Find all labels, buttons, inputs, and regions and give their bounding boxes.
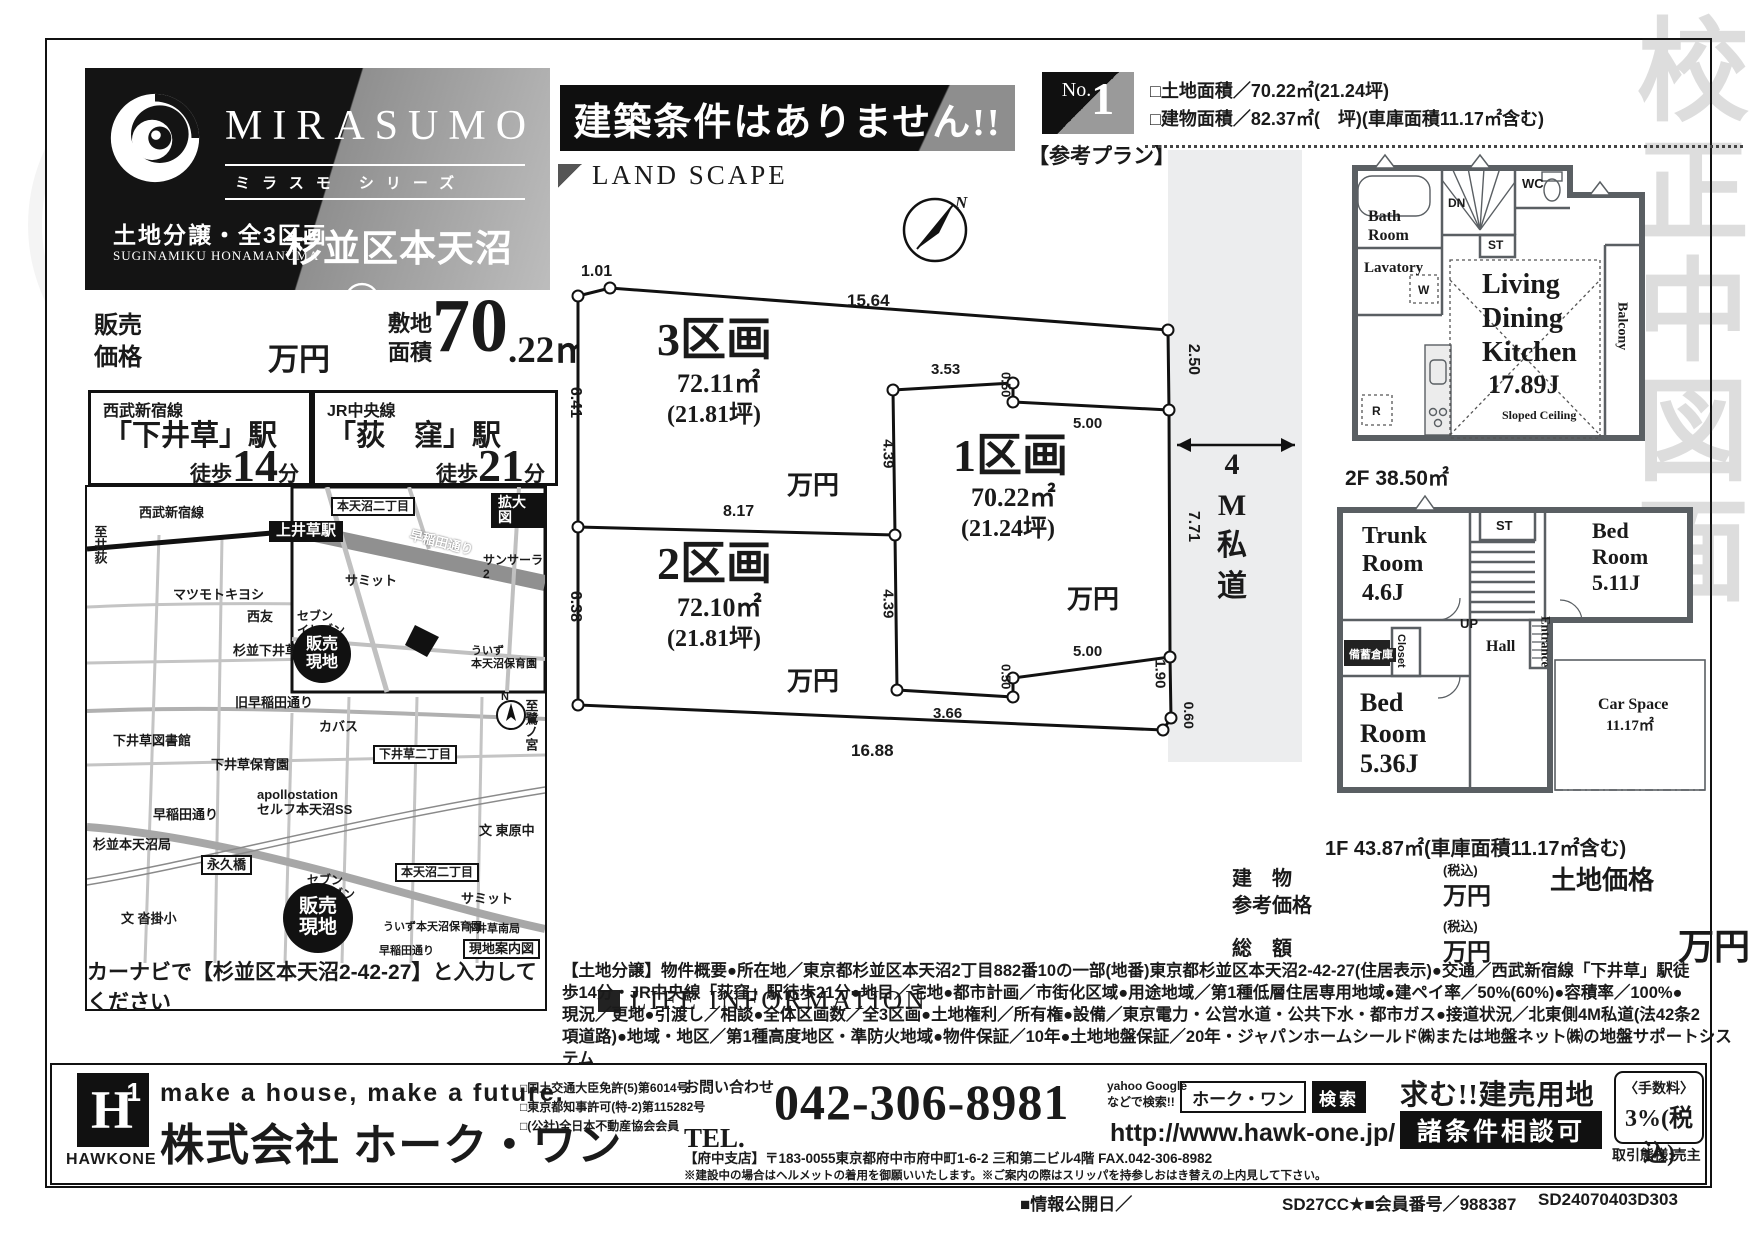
land-wanted-headline: 求む!!建売用地 [1400, 1073, 1595, 1113]
map-label: 下井草南局 [465, 923, 520, 936]
walk-suffix: 分 [524, 463, 545, 486]
room-label: Bed Room 5.11J [1592, 518, 1648, 596]
text-line: □(公社)全日本不動産協会会員 [520, 1117, 705, 1136]
room-label: WC [1522, 176, 1544, 191]
building-price-unit: 万円 [1443, 876, 1491, 911]
room-label: Entrance [1538, 616, 1553, 667]
map-label: 本天沼二丁目 [395, 863, 479, 882]
plan-no: 1 [1091, 73, 1114, 124]
walk-prefix: 徒歩 [190, 463, 232, 486]
map-label: 下井草保育園 [211, 757, 289, 772]
brand-series: ミラスモ シリーズ [235, 172, 466, 193]
floor-1f-area-caption: 1F 43.87㎡(車庫面積11.17㎡含む) [1325, 832, 1626, 861]
room-label: UP [1460, 616, 1478, 631]
lot-drawing [565, 145, 1305, 975]
room-label: 17.89J [1488, 370, 1560, 401]
room-label: 備蓄倉庫 [1346, 648, 1396, 662]
brand-block: MIRASUMO ミラスモ シリーズ 土地分譲・全3区画 SUGINAMIKU … [85, 68, 550, 290]
room-label: R [1372, 404, 1381, 418]
station-box-ogikubo: JR中央線 「荻 窪」駅 徒歩21分 [312, 390, 558, 486]
map-label: サミット [345, 573, 397, 588]
footer: H 1 HAWKONE make a house, make a future.… [50, 1063, 1707, 1185]
phone-number: 042-306-8981 [774, 1077, 1069, 1127]
map-compass-n: N [501, 691, 509, 704]
room-label: Dining [1482, 302, 1563, 335]
member-number: SD27CC★■会員番号／988387 [1282, 1190, 1516, 1215]
lot-diagram: N 4 M 私 道 [565, 145, 1305, 975]
map-label: 西武新宿線 [139, 505, 204, 520]
map-label: 永久橋 [201, 855, 252, 875]
search-button: 検索 [1312, 1081, 1366, 1113]
map-label: サンサーラ2 [483, 553, 545, 581]
floor-2f-area-caption: 2F 38.50㎡ [1345, 462, 1449, 492]
map-label: 杉並本天沼局 [93, 837, 171, 852]
deal-type: 取引態様:売主 [1612, 1145, 1701, 1165]
total-price-label: 総 額 [1232, 932, 1292, 961]
hawkone-logo-icon: H 1 [77, 1073, 149, 1147]
walk-prefix: 徒歩 [436, 463, 478, 486]
room-label: 11.17㎡ [1606, 718, 1654, 736]
branch-address: 【府中支店】〒183-0055東京都府中市府中町1-6-2 三和第二ビル4階 F… [684, 1147, 1212, 1167]
area-summary: □土地面積／70.22㎡(21.24坪) □建物面積／82.37㎡( 坪)(車庫… [1150, 78, 1544, 134]
floor-plan-1f: Trunk Room 4.6JSTBed Room 5.11JUPHallEnt… [1320, 490, 1712, 828]
building-price-label: 建 物 参考価格 [1232, 866, 1312, 920]
map-label: 早稲田通り [153, 807, 218, 822]
map-label: apollostation セルフ本天沼SS [257, 787, 352, 818]
sale-price-unit: 万円 [268, 334, 330, 379]
text-line: 歩14分・JR中央線「荻窪」駅徒歩21分●地目／宅地●都市計画／市街化区域●用途… [562, 982, 1744, 1004]
map-label: 旧早稲田通り [235, 695, 313, 710]
contact-label: お問い合わせ [684, 1079, 774, 1097]
fee-box: 〈手数料〉 3%(税込) [1614, 1071, 1704, 1144]
plan-no-prefix: No. [1062, 79, 1091, 101]
document-code: SD24070403D303 [1538, 1190, 1678, 1210]
text-line: 【土地分譲】物件概要●所在地／東京都杉並区本天沼2丁目882番10の一部(地番)… [562, 960, 1744, 982]
website-url: http://www.hawk-one.jp/ [1110, 1119, 1395, 1148]
text-line: □東京都知事許可(特-2)第115282号 [520, 1098, 705, 1117]
map-label: 西友 [247, 609, 273, 624]
site-area-value: 70 [432, 288, 508, 364]
conditions-negotiable-banner: 諸条件相談可 [1400, 1111, 1602, 1149]
rail-line: 西武新宿線 [103, 397, 299, 421]
room-label: Sloped Ceiling [1502, 408, 1576, 422]
walk-minutes: 14 [232, 440, 278, 491]
brand-name: MIRASUMO [225, 102, 536, 150]
info-release-date: ■情報公開日／ [1020, 1190, 1132, 1215]
divider [225, 164, 525, 166]
rail-line: JR中央線 [327, 397, 545, 421]
map-label: サミット [461, 891, 513, 906]
map-label: 文 沓掛小 [121, 911, 177, 926]
company-tagline: make a house, make a future. [160, 1079, 565, 1108]
visit-note: ※建設中の場合はヘルメットの着用を御願いいたします。※ご案内の際はスリッパを持参… [684, 1167, 1327, 1183]
search-keyword-box: ホーク・ワン [1180, 1081, 1306, 1113]
map-label: 下井草二丁目 [373, 745, 457, 764]
logo-one: 1 [127, 1077, 141, 1108]
mirasumo-logo-icon [107, 90, 203, 186]
building-area-line: □建物面積／82.37㎡( 坪)(車庫面積11.17㎡含む) [1150, 106, 1544, 134]
room-label: Car Space [1598, 696, 1668, 715]
room-label: Trunk Room 4.6J [1362, 522, 1427, 607]
room-label: Kitchen [1482, 336, 1577, 369]
map-label: 至鷺ノ宮 [523, 699, 538, 751]
room-label: ST [1496, 518, 1513, 533]
hawkone-logo-text: HAWKONE [66, 1151, 157, 1169]
phone-block: お問い合わせ TEL. 042-306-8981 [684, 1069, 1069, 1154]
map-label: カバス [319, 719, 358, 734]
map-label: 販売 現地 [283, 883, 353, 953]
fee-label: 〈手数料〉 [1616, 1078, 1702, 1098]
site-area-label: 敷地 面積 [388, 310, 432, 367]
room-label: Lavatory [1364, 260, 1423, 278]
carnavi-caption: カーナビで【杉並区本天沼2-42-27】と入力してください [85, 963, 547, 1011]
room-label: Bed Room 5.36J [1360, 688, 1426, 780]
station-box-shimoigusa: 西武新宿線 「下井草」駅 徒歩14分 [88, 390, 312, 486]
map-label: 本天沼二丁目 [331, 497, 415, 516]
land-area-line: □土地面積／70.22㎡(21.24坪) [1150, 78, 1544, 106]
map-label: 上井草駅 [269, 521, 343, 542]
license-list: □国土交通大臣免許(5)第6014号□東京都知事許可(特-2)第115282号□… [520, 1079, 705, 1137]
floor-plan-2f: Bath RoomDNSTWCLavatoryWRLivingDiningKit… [1330, 150, 1670, 460]
room-label: W [1418, 283, 1429, 297]
room-label: Bath Room [1368, 208, 1409, 246]
text-line: □国土交通大臣免許(5)第6014号 [520, 1079, 705, 1098]
text-line: 現況／更地●引渡し／相談●全体区画数／全3区画●土地権利／所有権●設備／東京電力… [562, 1004, 1744, 1026]
room-label: DN [1448, 196, 1465, 210]
map-label: 拡大図 [491, 493, 545, 528]
walk-minutes: 21 [478, 440, 524, 491]
map-label: 下井草図書館 [113, 733, 191, 748]
room-label: Living [1482, 268, 1560, 301]
map-label: 販売 現地 [293, 625, 351, 683]
search-hint: yahoo Google などで検索!! [1107, 1079, 1187, 1110]
lot-compass-n: N [955, 193, 967, 213]
land-price-label: 土地価格 [1550, 860, 1654, 897]
no-building-condition-banner: 建築条件はありません!! [560, 85, 1015, 151]
area-map: N 至井荻西武新宿線上井草駅至鷺ノ宮マツモトキヨシ西友杉並下井草局旧早稲田通り下… [85, 485, 547, 965]
map-label: 文 東原中 [479, 823, 535, 838]
room-label: Balcony [1613, 302, 1630, 350]
private-road-label: 4 M 私 道 [1217, 445, 1247, 607]
plan-number-badge: No.1 [1042, 72, 1134, 134]
map-label: ういず 本天沼保育園 [471, 645, 537, 671]
walk-suffix: 分 [278, 463, 299, 486]
room-label: ST [1488, 238, 1503, 252]
map-label: マツモトキヨシ [173, 587, 264, 602]
divider [225, 198, 525, 200]
map-label: 至井荻 [92, 525, 107, 564]
room-label: Hall [1486, 638, 1515, 657]
sale-price-label: 販売 価格 [94, 310, 142, 375]
